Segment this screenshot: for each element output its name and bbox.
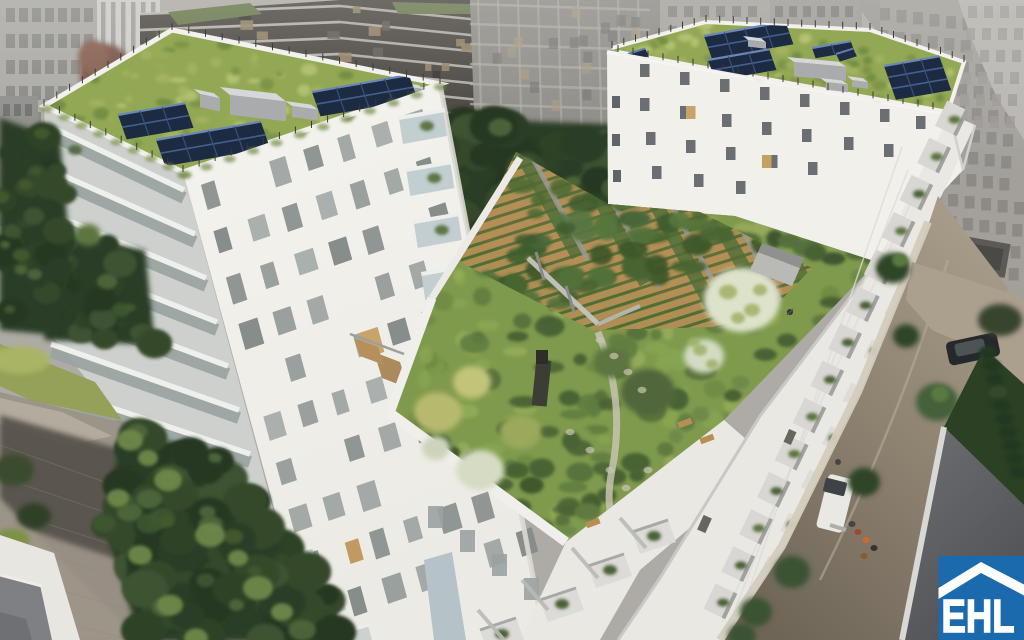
svg-text:EHL: EHL	[942, 590, 1015, 640]
